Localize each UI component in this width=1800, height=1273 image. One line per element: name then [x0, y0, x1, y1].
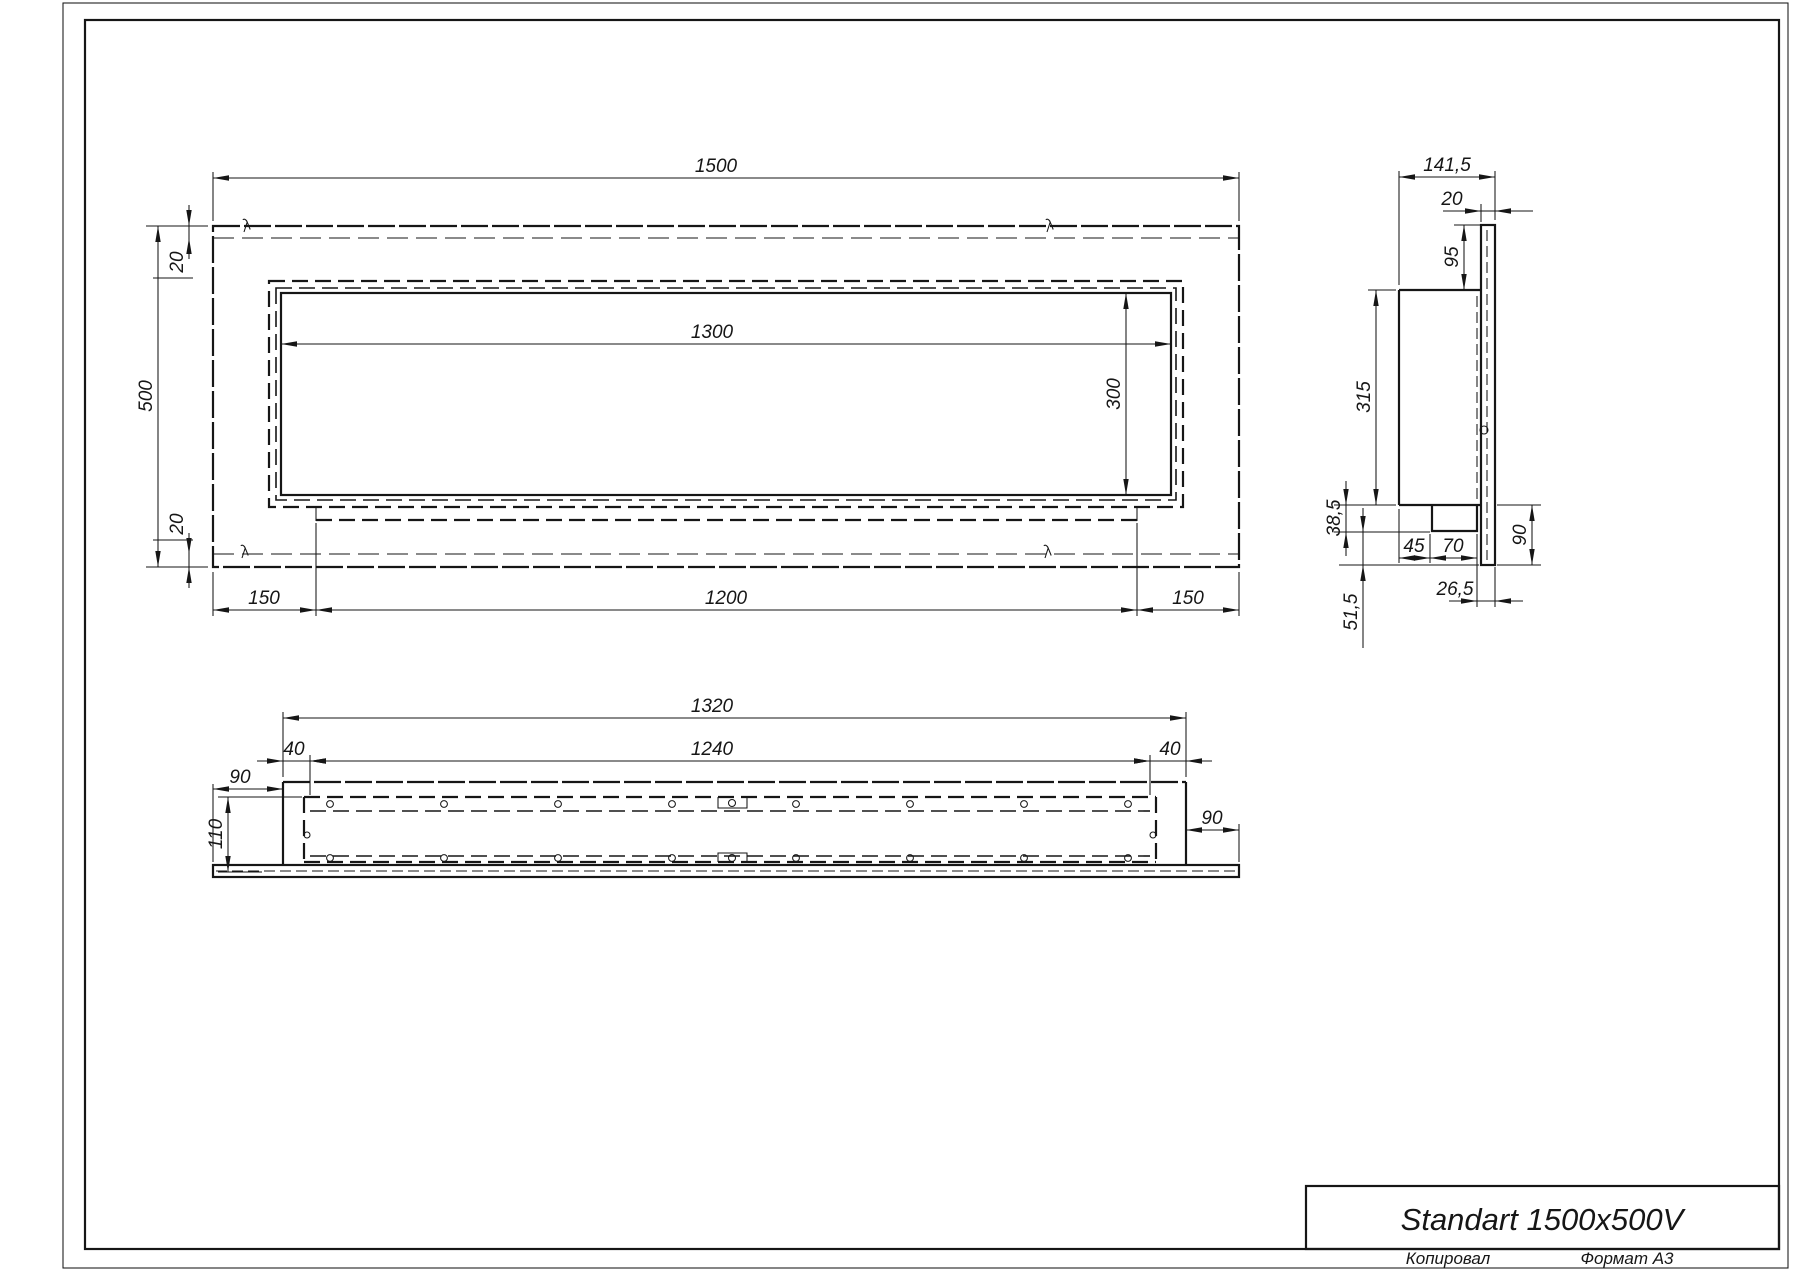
dim-front-burner-strip: 1200: [705, 588, 748, 609]
side-front-plate: [1481, 225, 1495, 565]
dim-front-left-margin: 150: [248, 588, 280, 609]
dim-bottom-liner-length: 1240: [691, 739, 734, 760]
front-opening-hidden-edge-2: [269, 281, 1183, 507]
product-title: Standart 1500x500V: [1401, 1202, 1687, 1237]
dim-bottom-right-overhang: 90: [1201, 808, 1223, 829]
side-burner-tray: [1432, 505, 1477, 531]
drawing-sheet: Standart 1500x500V Копировал Формат А3: [0, 0, 1800, 1273]
bottom-liner-hidden-edges: [304, 797, 1156, 862]
dim-front-right-margin: 150: [1172, 588, 1204, 609]
dim-bottom-body-length: 1320: [691, 696, 734, 717]
dim-bottom-right-inset: 40: [1159, 739, 1181, 760]
dim-side-frame-depth: 20: [1440, 189, 1463, 210]
dim-front-top-offset: 20: [167, 251, 188, 274]
dim-front-opening-width: 1300: [691, 322, 734, 343]
bottom-center-notch: [718, 797, 747, 862]
dim-side-top-gap: 95: [1442, 246, 1463, 268]
extension-lines: [213, 712, 1239, 872]
dim-side-tray-drop: 38,5: [1324, 499, 1345, 536]
bottom-view: [213, 782, 1239, 877]
dim-side-body-height: 315: [1354, 381, 1375, 413]
dim-side-front-offset: 26,5: [1436, 579, 1474, 600]
dim-front-opening-height: 300: [1104, 378, 1125, 410]
dim-side-lower-overhang: 51,5: [1341, 593, 1362, 630]
front-opening-hidden-edge-1: [276, 288, 1176, 500]
bottom-mount-holes: [304, 801, 1156, 862]
dim-front-bottom-offset: 20: [167, 513, 188, 536]
dimension-lines: [158, 178, 1239, 610]
dim-front-height: 500: [136, 380, 157, 412]
dim-bottom-left-overhang: 90: [229, 767, 251, 788]
dim-side-bottom-overhang: 90: [1510, 524, 1531, 546]
side-view-dimensions: 141,5 20 95 315 38,5 45 70 90 26,5 51,5: [1324, 155, 1541, 648]
bottom-view-dimensions: 1320 1240 40 40 90 90 110: [206, 696, 1239, 872]
footer-format-label: Формат А3: [1580, 1249, 1674, 1268]
dim-bottom-depth: 110: [206, 818, 227, 849]
dim-bottom-left-inset: 40: [283, 739, 305, 760]
front-view: [213, 219, 1239, 567]
title-block: Standart 1500x500V Копировал Формат А3: [1306, 1186, 1779, 1268]
footer-copied-label: Копировал: [1406, 1249, 1491, 1268]
extension-lines: [146, 172, 1239, 616]
technical-drawing: Standart 1500x500V Копировал Формат А3: [0, 0, 1800, 1273]
dim-side-total-depth: 141,5: [1423, 155, 1471, 176]
dim-side-rear-gap: 45: [1403, 536, 1425, 557]
dim-side-tray-width: 70: [1442, 536, 1464, 557]
front-frame-outline: [213, 226, 1239, 567]
dim-front-width: 1500: [695, 156, 738, 177]
side-view: [1399, 225, 1495, 565]
page-border: [63, 3, 1788, 1268]
